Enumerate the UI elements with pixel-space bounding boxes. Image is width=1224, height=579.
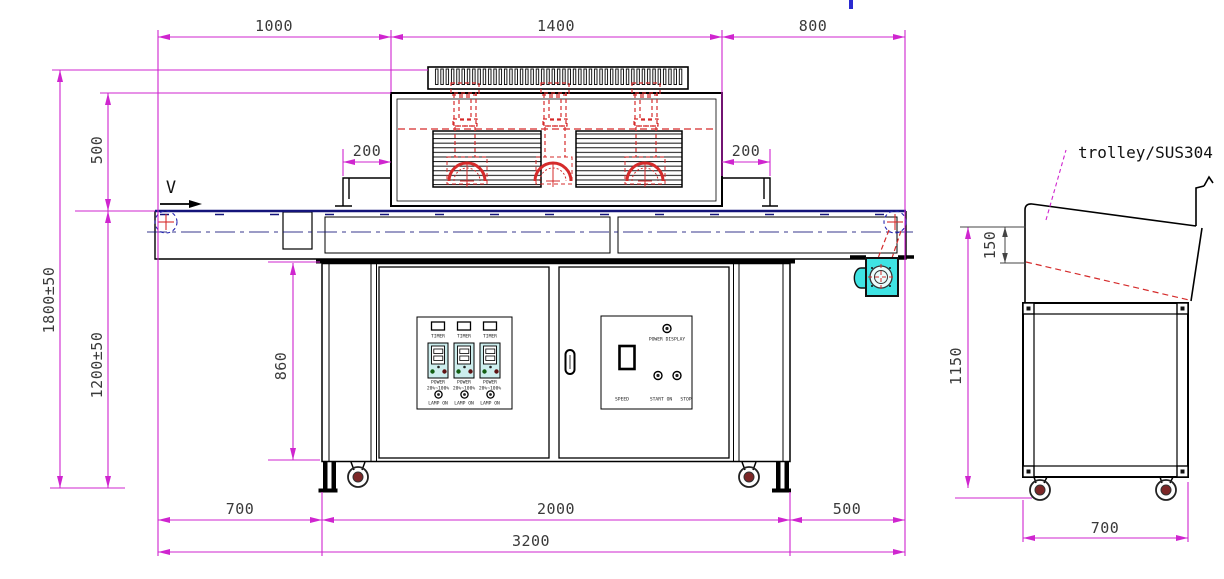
conveyor-navy-lines	[147, 211, 913, 233]
timer-label-3: TIMER	[483, 333, 497, 338]
timer-label-2: TIMER	[457, 333, 471, 338]
dim-trolley-150: 150	[981, 231, 999, 260]
leveling-feet	[319, 462, 792, 493]
dim-top-1000: 1000	[255, 17, 293, 35]
trolley-view	[1023, 177, 1213, 500]
cabinet-casters	[348, 462, 759, 487]
timer-label-1: TIMER	[431, 333, 445, 338]
trolley-label-leader	[1046, 150, 1066, 220]
operator-panel-plate	[601, 316, 692, 409]
power-label-1: POWER	[431, 379, 445, 384]
dim-offset-right-200: 200	[732, 142, 761, 160]
direction-arrow	[160, 200, 202, 208]
power-label-3: POWER	[483, 379, 497, 384]
lamp-on-label-3: LAMP ON	[480, 400, 500, 405]
dim-bottom-700: 700	[226, 500, 255, 518]
dim-bottom-2000: 2000	[537, 500, 575, 518]
dim-left-1200: 1200±50	[88, 332, 106, 399]
lamp-on-label-2: LAMP ON	[454, 400, 474, 405]
dim-offset-left-200: 200	[353, 142, 382, 160]
trolley-tray-slope	[1026, 262, 1189, 300]
vent-grille	[428, 67, 688, 89]
stop-label: STOP	[680, 396, 691, 401]
roller-center-marks	[158, 214, 903, 230]
speed-display	[620, 346, 635, 369]
cad-drawing-canvas: 1000 1400 800 200 200 1800±50 500 1200±5…	[0, 0, 1224, 579]
dim-trolley-1150: 1150	[947, 347, 965, 385]
cad-linework	[0, 0, 1224, 579]
trolley-casters	[1030, 477, 1176, 500]
dim-bottom-500: 500	[833, 500, 862, 518]
power-range-3: 20%~100%	[479, 385, 501, 390]
drive-motor	[850, 257, 914, 296]
machine-black-linework	[155, 67, 906, 493]
power-label-2: POWER	[457, 379, 471, 384]
lamp-on-label-1: LAMP ON	[428, 400, 448, 405]
control-panel-plate	[417, 317, 512, 409]
fan-unit-2	[541, 83, 569, 157]
dim-cabinet-860: 860	[272, 352, 290, 381]
guard-right	[722, 178, 778, 206]
trolley-title-label: trolley/SUS304	[1078, 143, 1213, 162]
dim-left-500: 500	[88, 136, 106, 165]
power-range-2: 20%~100%	[453, 385, 475, 390]
power-range-1: 20%~100%	[427, 385, 449, 390]
dim-top-800: 800	[799, 17, 828, 35]
conveyor	[155, 211, 906, 259]
start-on-label: START ON	[650, 396, 672, 401]
dim-left-1800: 1800±50	[40, 267, 58, 334]
guard-left	[335, 178, 391, 206]
dimension-linework	[50, 30, 1188, 556]
speed-label: SPEED	[615, 396, 629, 401]
power-display-label: POWER DISPLAY	[649, 336, 685, 341]
top-edge-blue-mark	[849, 0, 853, 9]
dim-bottom-3200: 3200	[512, 532, 550, 550]
velocity-label: V	[166, 178, 176, 198]
trolley-frame	[1023, 303, 1188, 477]
dim-trolley-700: 700	[1091, 519, 1120, 537]
cabinet	[316, 259, 795, 462]
dim-top-1400: 1400	[537, 17, 575, 35]
cabinet-door-right	[559, 267, 729, 458]
